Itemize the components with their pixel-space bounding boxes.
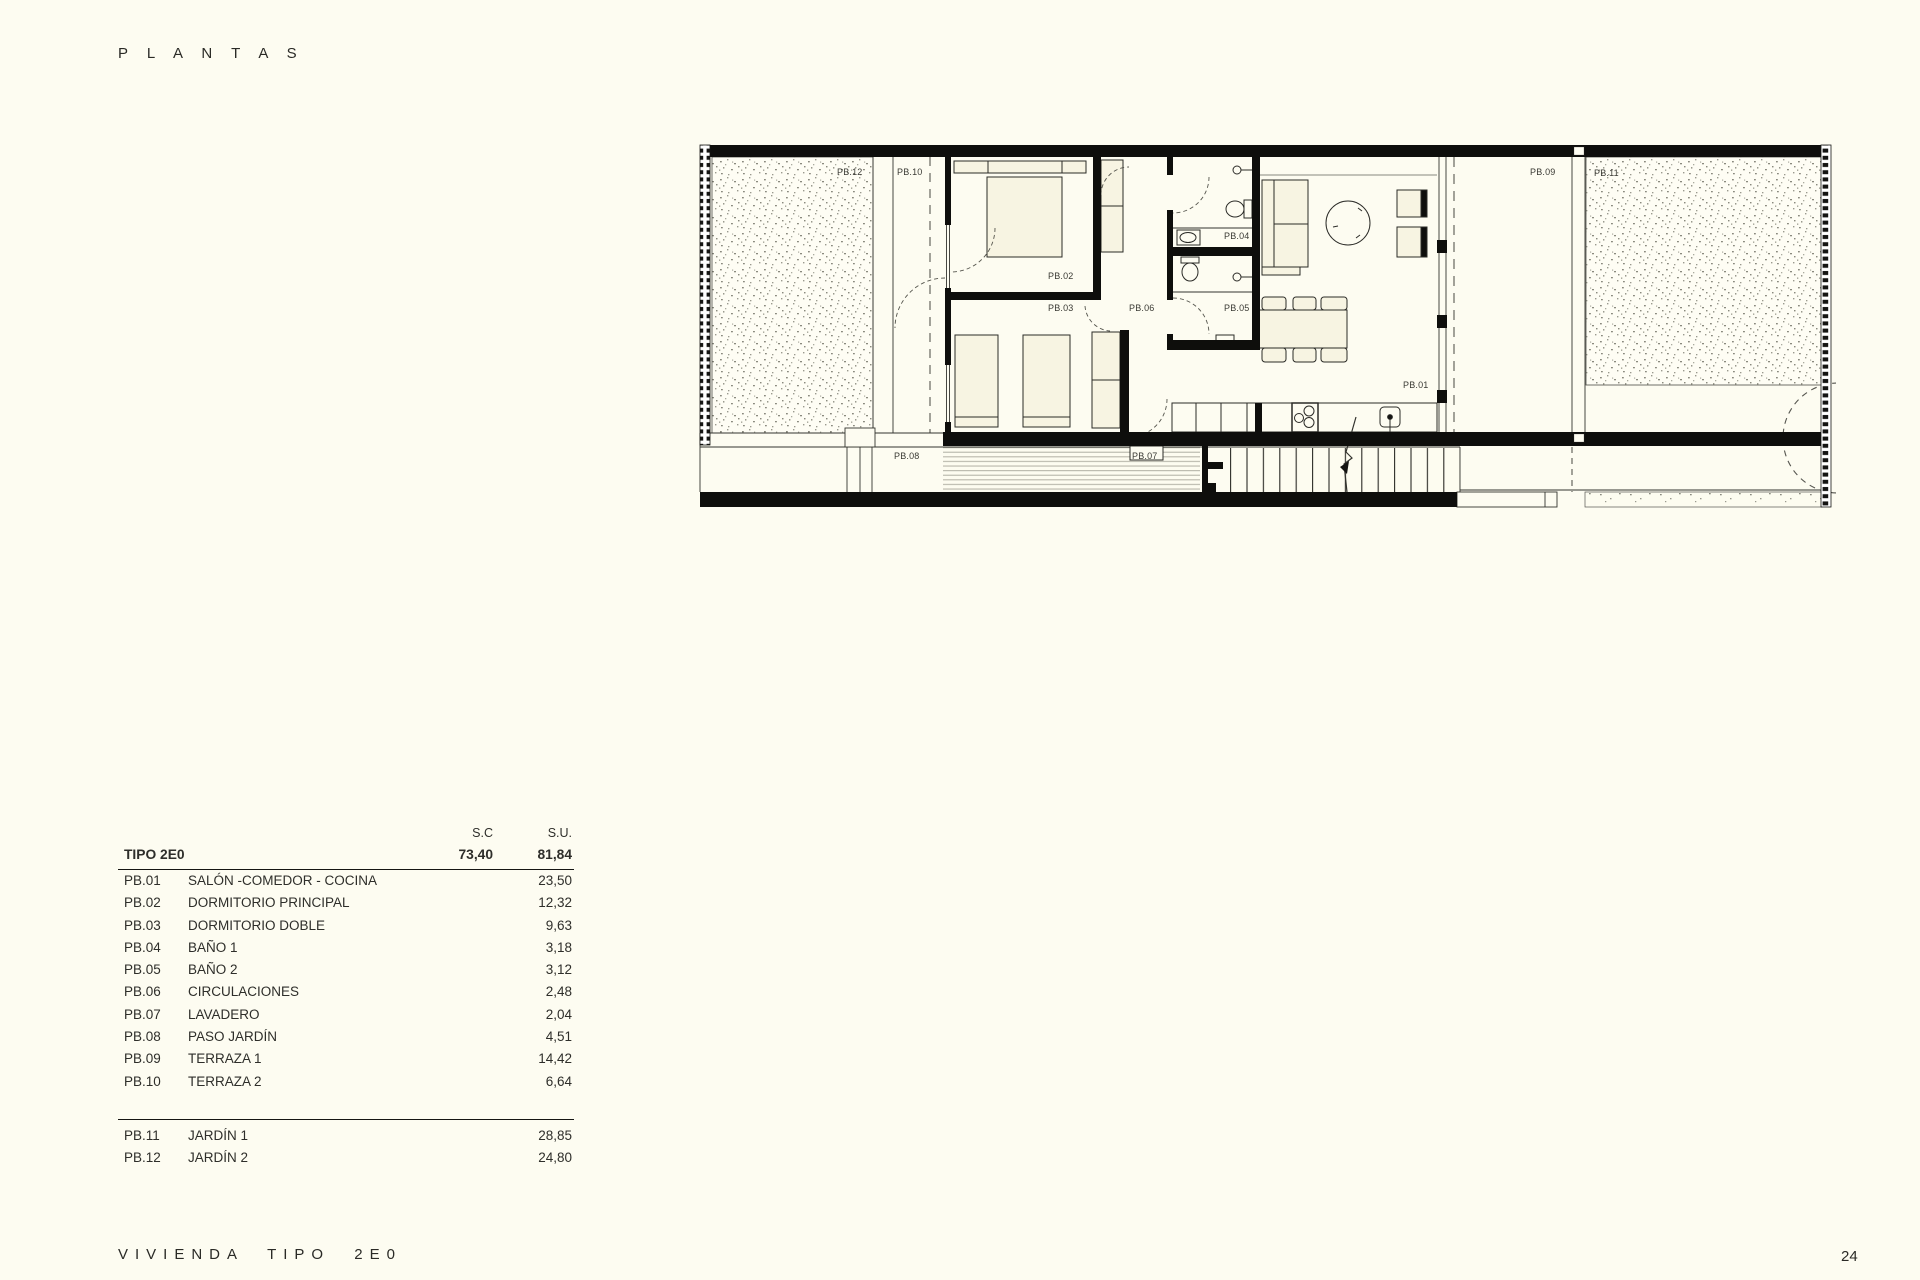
- room-label-pb08: PB.08: [894, 451, 920, 461]
- floor-plan-drawing: [696, 140, 1836, 510]
- room-label-pb06: PB.06: [1129, 303, 1155, 313]
- table-row: PB.11 JARDÍN 1 28,85: [118, 1125, 574, 1147]
- row-su: 2,48: [496, 981, 572, 1003]
- row-su: 2,04: [496, 1004, 572, 1026]
- table-row: PB.10 TERRAZA 2 6,64: [118, 1071, 574, 1093]
- row-name: DORMITORIO DOBLE: [188, 915, 325, 937]
- room-label-pb02: PB.02: [1048, 271, 1074, 281]
- row-code: PB.08: [124, 1026, 161, 1048]
- row-su: 23,50: [496, 870, 572, 892]
- row-code: PB.09: [124, 1048, 161, 1070]
- type-su-value: 81,84: [496, 847, 572, 862]
- row-code: PB.12: [124, 1147, 161, 1169]
- table-row: PB.04 BAÑO 1 3,18: [118, 937, 574, 959]
- table-row: PB.03 DORMITORIO DOBLE 9,63: [118, 915, 574, 937]
- table-row: PB.08 PASO JARDÍN 4,51: [118, 1026, 574, 1048]
- row-name: TERRAZA 1: [188, 1048, 262, 1070]
- table-row: PB.06 CIRCULACIONES 2,48: [118, 981, 574, 1003]
- room-label-pb04: PB.04: [1224, 231, 1250, 241]
- row-code: PB.02: [124, 892, 161, 914]
- table-header-row: S.C S.U.: [118, 826, 574, 846]
- table-row: PB.02 DORMITORIO PRINCIPAL 12,32: [118, 892, 574, 914]
- row-code: PB.06: [124, 981, 161, 1003]
- row-name: TERRAZA 2: [188, 1071, 262, 1093]
- row-su: 9,63: [496, 915, 572, 937]
- room-label-pb10: PB.10: [897, 167, 923, 177]
- row-su: 3,18: [496, 937, 572, 959]
- row-name: DORMITORIO PRINCIPAL: [188, 892, 350, 914]
- table-row: PB.05 BAÑO 2 3,12: [118, 959, 574, 981]
- room-label-pb01: PB.01: [1403, 380, 1429, 390]
- row-su: 14,42: [496, 1048, 572, 1070]
- room-label-pb12: PB.12: [837, 167, 863, 177]
- row-code: PB.01: [124, 870, 161, 892]
- type-sc-value: 73,40: [403, 847, 493, 862]
- table-type-row: TIPO 2E0 73,40 81,84: [118, 846, 574, 870]
- row-code: PB.10: [124, 1071, 161, 1093]
- row-su: 3,12: [496, 959, 572, 981]
- document-page: P L A N T A S: [0, 0, 1920, 1280]
- row-name: PASO JARDÍN: [188, 1026, 277, 1048]
- row-code: PB.05: [124, 959, 161, 981]
- row-su: 4,51: [496, 1026, 572, 1048]
- row-name: CIRCULACIONES: [188, 981, 299, 1003]
- row-code: PB.04: [124, 937, 161, 959]
- row-name: JARDÍN 2: [188, 1147, 248, 1169]
- table-separator: [118, 1119, 574, 1120]
- row-code: PB.11: [124, 1125, 160, 1147]
- room-label-pb07: PB.07: [1132, 451, 1158, 461]
- footer-title: VIVIENDA TIPO 2E0: [118, 1246, 402, 1263]
- row-name: SALÓN -COMEDOR - COCINA: [188, 870, 377, 892]
- row-name: BAÑO 1: [188, 937, 238, 959]
- room-label-pb03: PB.03: [1048, 303, 1074, 313]
- header-su: S.U.: [496, 826, 572, 840]
- row-name: BAÑO 2: [188, 959, 238, 981]
- row-code: PB.03: [124, 915, 161, 937]
- row-name: JARDÍN 1: [188, 1125, 248, 1147]
- row-su: 24,80: [496, 1147, 572, 1169]
- page-number: 24: [1841, 1248, 1858, 1265]
- table-row: PB.09 TERRAZA 1 14,42: [118, 1048, 574, 1070]
- room-label-pb05: PB.05: [1224, 303, 1250, 313]
- table-row: PB.01 SALÓN -COMEDOR - COCINA 23,50: [118, 870, 574, 892]
- room-label-pb11: PB.11: [1594, 168, 1619, 178]
- table-row: PB.12 JARDÍN 2 24,80: [118, 1147, 574, 1169]
- type-label: TIPO 2E0: [124, 847, 185, 862]
- room-label-pb09: PB.09: [1530, 167, 1556, 177]
- page-title: P L A N T A S: [118, 45, 304, 62]
- row-code: PB.07: [124, 1004, 161, 1026]
- floor-plan: PB.12 PB.10 PB.02 PB.03 PB.04 PB.05 PB.0…: [696, 140, 1836, 510]
- table-row: PB.07 LAVADERO 2,04: [118, 1004, 574, 1026]
- areas-table: S.C S.U. TIPO 2E0 73,40 81,84 PB.01 SALÓ…: [118, 826, 574, 1170]
- row-su: 6,64: [496, 1071, 572, 1093]
- header-sc: S.C: [403, 826, 493, 840]
- row-su: 12,32: [496, 892, 572, 914]
- row-su: 28,85: [496, 1125, 572, 1147]
- row-name: LAVADERO: [188, 1004, 260, 1026]
